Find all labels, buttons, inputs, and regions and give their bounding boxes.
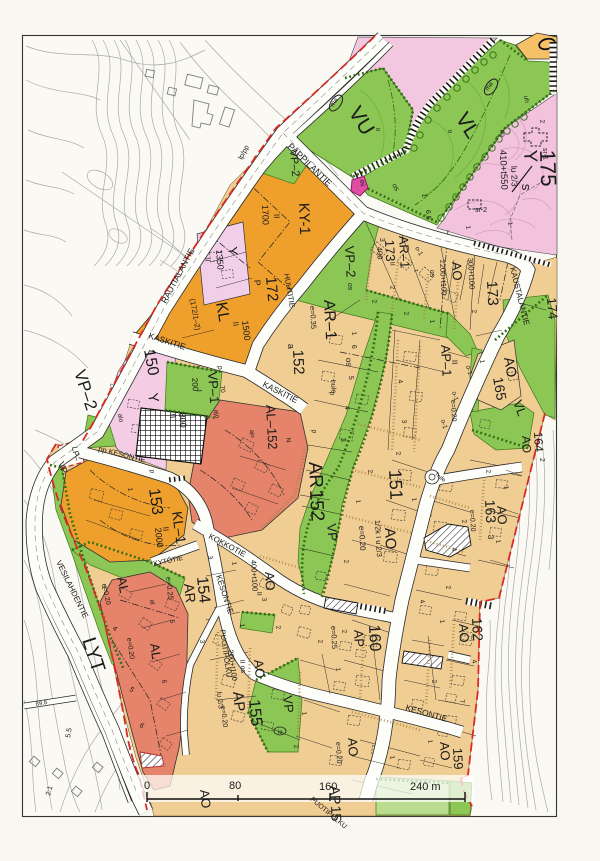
svg-text:a: a: [286, 344, 296, 350]
svg-text:155: 155: [245, 699, 265, 727]
svg-text:e=0.20: e=0.20: [449, 400, 457, 422]
svg-text:os: os: [428, 270, 435, 278]
svg-text:AO: AO: [519, 435, 534, 453]
svg-text:6,5: 6,5: [424, 210, 432, 220]
svg-text:3: 3: [339, 438, 346, 442]
svg-text:173: 173: [483, 280, 501, 306]
svg-text:VP: VP: [280, 695, 297, 714]
svg-text:AO: AO: [197, 789, 214, 809]
svg-text:AO: AO: [262, 571, 278, 591]
svg-text:4: 4: [343, 406, 350, 410]
svg-text:II: II: [161, 526, 170, 531]
svg-text:5: 5: [347, 376, 354, 380]
svg-text:80: 80: [229, 780, 241, 792]
svg-text:s: s: [519, 184, 534, 192]
svg-text:os: os: [346, 283, 353, 291]
svg-text:e=0.20: e=0.20: [334, 742, 342, 764]
svg-text:VP–2: VP–2: [287, 149, 301, 177]
svg-text:Y: Y: [225, 246, 241, 256]
svg-text:AL–152: AL–152: [263, 404, 280, 450]
svg-text:200+t100: 200+t100: [438, 264, 449, 296]
svg-text:160: 160: [365, 624, 383, 652]
svg-text:AL: AL: [147, 642, 164, 660]
svg-text:152: 152: [289, 349, 307, 375]
svg-text:II: II: [272, 214, 281, 219]
svg-text:AR: AR: [304, 461, 326, 488]
svg-text:300+t100: 300+t100: [466, 258, 477, 290]
svg-text:3: 3: [378, 238, 385, 242]
svg-text:sr-1: sr-1: [541, 148, 549, 161]
svg-text:II os: II os: [238, 659, 246, 673]
svg-text:p: p: [216, 366, 223, 371]
svg-text:II: II: [388, 262, 395, 266]
svg-text:AO: AO: [494, 505, 510, 525]
svg-text:174: 174: [544, 297, 561, 320]
svg-text:II: II: [203, 258, 210, 263]
svg-text:VP–2: VP–2: [342, 245, 359, 278]
svg-text:400+t100: 400+t100: [249, 560, 260, 592]
svg-text:151: 151: [385, 469, 407, 500]
svg-text:KL: KL: [212, 301, 232, 323]
svg-text:AO: AO: [456, 623, 472, 643]
svg-text:2: 2: [538, 458, 545, 462]
svg-text:AP: AP: [327, 785, 344, 804]
svg-text:e=0.35: e=0.35: [308, 306, 318, 330]
svg-text:0: 0: [144, 780, 150, 792]
svg-text:6: 6: [350, 345, 357, 349]
svg-text:Y: Y: [519, 149, 540, 163]
svg-text:1350: 1350: [214, 249, 226, 270]
svg-text:II: II: [168, 413, 177, 418]
svg-text:240 m: 240 m: [410, 781, 441, 793]
svg-text:le: le: [278, 730, 283, 736]
svg-text:400: 400: [375, 247, 385, 260]
svg-text:II: II: [255, 592, 262, 596]
svg-text:AO: AO: [251, 659, 268, 679]
svg-text:152: 152: [305, 489, 328, 522]
svg-text:os: os: [344, 358, 353, 367]
svg-text:KY-1: KY-1: [295, 203, 313, 236]
svg-text:172: 172: [262, 276, 281, 302]
svg-text:e=0.20: e=0.20: [357, 526, 367, 552]
svg-text:P: P: [252, 279, 262, 286]
svg-text:AP: AP: [351, 629, 367, 647]
svg-text:e=0.25: e=0.25: [329, 626, 339, 650]
svg-text:AR: AR: [181, 583, 199, 604]
svg-text:159: 159: [450, 747, 466, 769]
svg-text:VP: VP: [324, 523, 340, 542]
svg-text:II: II: [450, 360, 459, 365]
svg-text:AR–1: AR–1: [320, 299, 339, 340]
svg-text:800: 800: [177, 412, 189, 428]
svg-text:410+t550: 410+t550: [497, 150, 509, 190]
svg-text:sr-2: sr-2: [475, 207, 487, 214]
svg-text:AO: AO: [345, 737, 361, 757]
svg-text:lu 2/3: lu 2/3: [509, 166, 520, 187]
svg-text:1700: 1700: [260, 205, 271, 225]
svg-text:e=0.20: e=0.20: [468, 510, 476, 532]
